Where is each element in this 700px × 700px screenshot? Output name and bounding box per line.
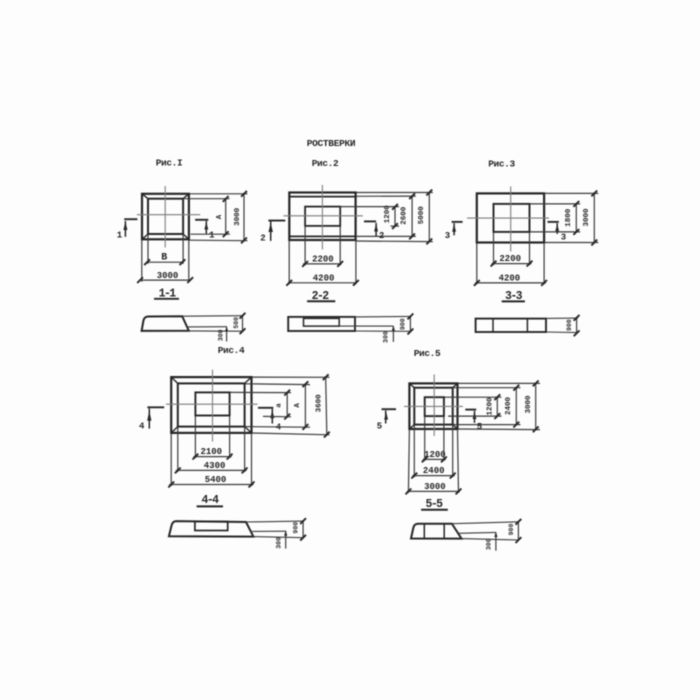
- svg-text:5: 5: [477, 422, 482, 432]
- svg-text:5: 5: [377, 421, 382, 431]
- svg-text:2600: 2600: [401, 206, 409, 225]
- svg-text:1200: 1200: [424, 450, 446, 460]
- svg-text:4300: 4300: [204, 461, 226, 471]
- svg-text:Рис.I: Рис.I: [156, 158, 183, 169]
- svg-text:3600: 3600: [316, 394, 324, 413]
- svg-text:2400: 2400: [423, 466, 445, 476]
- svg-text:300: 300: [486, 538, 493, 550]
- svg-text:Рис.3: Рис.3: [488, 159, 515, 170]
- svg-text:5400: 5400: [205, 475, 227, 485]
- svg-text:4200: 4200: [313, 273, 335, 283]
- svg-text:2400: 2400: [505, 397, 513, 416]
- svg-text:1200: 1200: [486, 397, 494, 416]
- svg-text:300: 300: [382, 331, 389, 343]
- svg-text:4-4: 4-4: [202, 494, 220, 507]
- svg-text:а: а: [276, 403, 284, 408]
- svg-text:300: 300: [275, 537, 282, 549]
- svg-text:3000: 3000: [234, 207, 242, 226]
- svg-text:А: А: [294, 403, 302, 408]
- svg-text:3000: 3000: [424, 482, 446, 492]
- svg-text:900: 900: [508, 524, 515, 536]
- svg-text:1800: 1800: [565, 208, 573, 227]
- svg-text:3000: 3000: [525, 395, 533, 414]
- svg-text:500: 500: [233, 317, 240, 329]
- svg-text:1: 1: [209, 231, 215, 241]
- svg-text:5000: 5000: [418, 206, 426, 225]
- svg-text:2100: 2100: [200, 447, 222, 457]
- svg-text:300: 300: [218, 329, 225, 341]
- svg-text:Рис.2: Рис.2: [312, 158, 339, 169]
- svg-text:В: В: [161, 253, 167, 264]
- svg-text:3000: 3000: [583, 208, 591, 227]
- svg-text:2200: 2200: [499, 254, 521, 264]
- svg-text:РОСТВЕРКИ: РОСТВЕРКИ: [307, 138, 356, 149]
- svg-text:2200: 2200: [312, 254, 334, 264]
- svg-text:1200: 1200: [384, 205, 392, 224]
- svg-text:1: 1: [117, 231, 123, 241]
- svg-text:Рис.5: Рис.5: [414, 348, 441, 359]
- svg-text:3: 3: [561, 232, 566, 242]
- svg-text:Рис.4: Рис.4: [218, 345, 245, 356]
- svg-text:900: 900: [292, 522, 299, 534]
- svg-text:2: 2: [260, 233, 265, 243]
- svg-text:А: А: [216, 214, 224, 219]
- svg-text:900: 900: [400, 318, 407, 330]
- svg-text:900: 900: [566, 319, 573, 331]
- svg-text:4200: 4200: [499, 274, 521, 284]
- svg-text:3: 3: [445, 231, 450, 241]
- svg-text:3000: 3000: [157, 271, 179, 281]
- svg-text:4: 4: [139, 422, 145, 432]
